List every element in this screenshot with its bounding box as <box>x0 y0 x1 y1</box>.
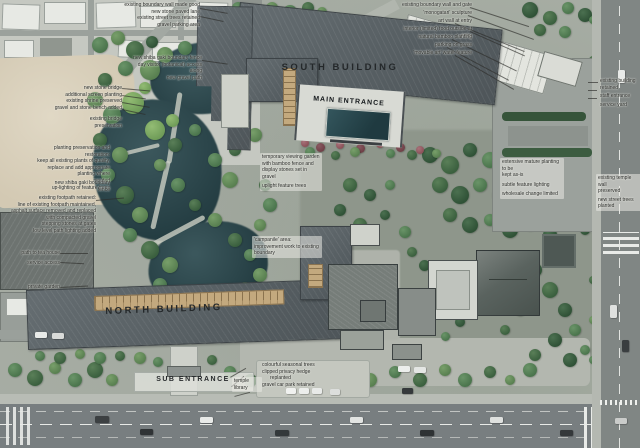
annotation-boundary-fence: new shiba gaki boundary fence <box>48 180 110 193</box>
annotation-top-right: existing boundary wall and gate 'monogat… <box>394 2 472 58</box>
leader-line <box>60 286 88 288</box>
leader-line <box>122 102 150 108</box>
annotation-tea-house: path to tea house <box>14 250 60 257</box>
leader-line <box>96 198 124 201</box>
leader-line <box>455 55 514 90</box>
sub-entrance-label: SUB ENTRANCE <box>145 376 241 383</box>
south-building-label: SOUTH BUILDING <box>262 62 418 73</box>
leader-line <box>234 392 250 397</box>
annotation-temple-wall: existing temple wall preserved new stree… <box>596 174 640 211</box>
annotation-footpath-group: existing footpath retained: line of exis… <box>8 195 96 235</box>
annotation-pond-access: new shiba gaki boundary fence day visito… <box>126 55 202 81</box>
leader-line <box>60 262 84 264</box>
site-plan: SOUTH BUILDING MAIN ENTRANCE NORTH BUILD… <box>0 0 640 448</box>
annotation-top-left: existing boundary wall made good new sto… <box>116 2 200 28</box>
leader-line <box>200 8 228 14</box>
annotation-viewing-garden: temporary viewing garden with bamboo fen… <box>260 153 322 191</box>
leader-line <box>588 90 597 91</box>
annotation-right-edge: existing building retained staff entranc… <box>600 78 640 108</box>
leader-line <box>202 60 228 64</box>
leader-line <box>122 95 146 99</box>
annotation-private-garden: private garden <box>12 284 60 291</box>
leader-line <box>60 253 88 254</box>
annotation-bridge-preservation: existing bridge preservation <box>62 116 122 129</box>
temple-library-label: temple library <box>232 377 262 392</box>
leader-line <box>470 7 529 27</box>
annotation-campanile: 'campanile' area: improvement work to ex… <box>252 236 322 258</box>
leader-line <box>200 16 224 22</box>
annotation-mature-planting: extensive mature planting to be kept as-… <box>500 158 564 199</box>
leader-line <box>122 109 146 115</box>
leader-line <box>588 98 597 99</box>
leader-line <box>122 88 150 91</box>
annotation-service-access: service access <box>18 260 60 267</box>
leader-line <box>588 82 598 83</box>
annotation-bottom-center: colourful seasonal trees clipped privacy… <box>262 362 344 388</box>
annotation-bridge-group: new stone bridge additional screen plant… <box>54 85 122 111</box>
leader-line <box>468 15 534 40</box>
